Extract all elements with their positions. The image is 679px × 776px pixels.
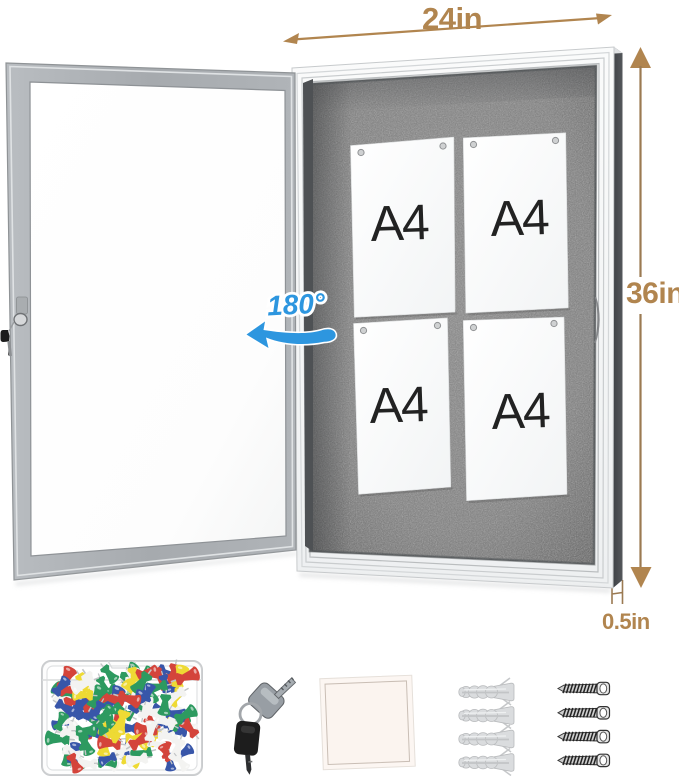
svg-text:A4: A4 (368, 376, 428, 434)
svg-text:A4: A4 (369, 194, 429, 252)
svg-text:A4: A4 (489, 189, 549, 247)
svg-text:24in: 24in (422, 1, 482, 36)
svg-text:36in: 36in (626, 277, 679, 310)
svg-text:0.5in: 0.5in (602, 609, 650, 634)
svg-text:180°: 180° (266, 287, 326, 321)
svg-text:A4: A4 (490, 382, 550, 440)
